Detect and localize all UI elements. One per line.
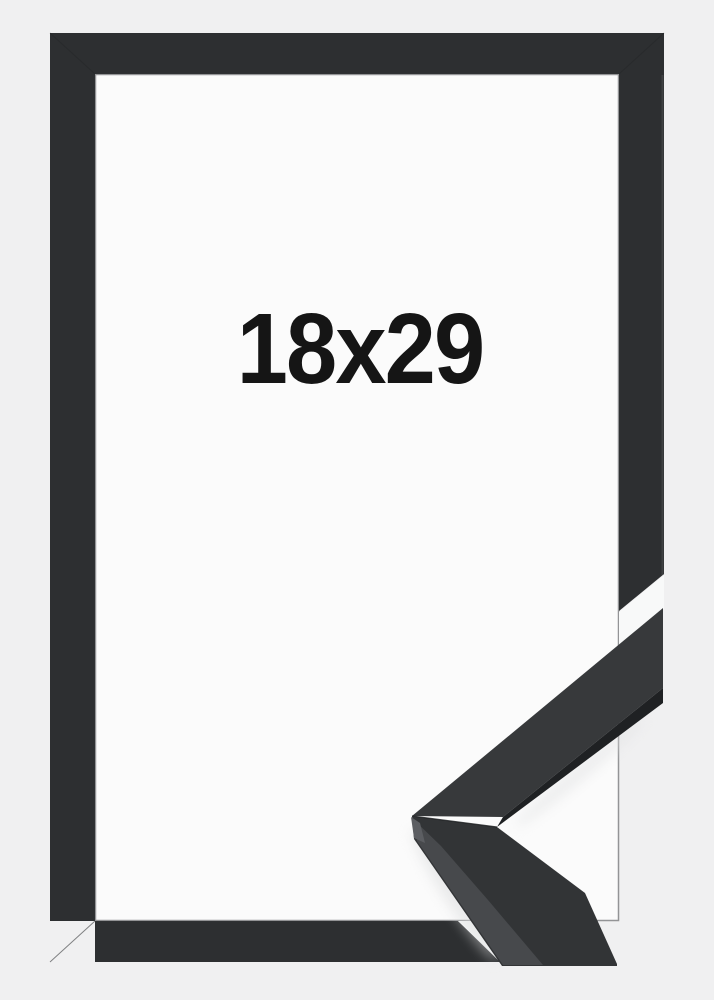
product-photo: 18x29 (0, 0, 714, 1000)
size-label: 18x29 (237, 293, 484, 404)
frame-product-image: 18x29 (0, 0, 714, 1000)
